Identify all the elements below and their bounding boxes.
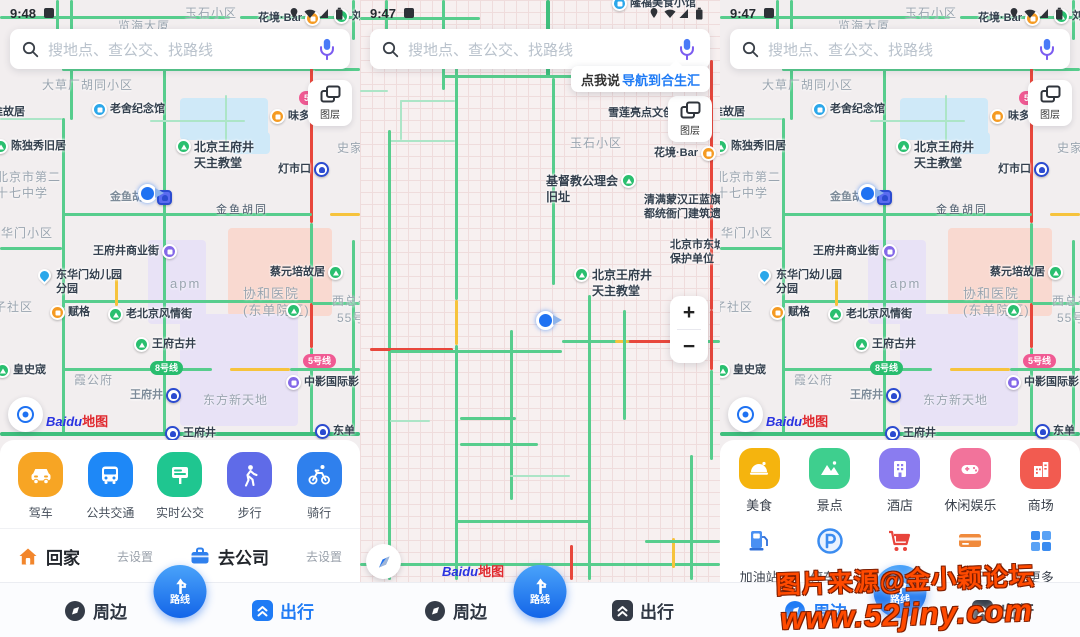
home-settings-link[interactable]: 去设置 — [117, 548, 153, 565]
clock: 9:47 — [370, 6, 396, 21]
poi-church[interactable]: 北京王府井天主教堂 — [896, 140, 974, 171]
poi-chenduxiu[interactable]: 陈独秀旧居 — [720, 140, 786, 154]
go-company-shortcut[interactable]: 去公司 — [190, 544, 269, 569]
district-label: 史家 — [337, 139, 360, 156]
heritage-icon — [328, 265, 343, 280]
heritage-icon — [0, 363, 10, 378]
locate-icon — [736, 405, 755, 424]
museum-icon — [812, 102, 827, 117]
compass-needle-icon — [375, 553, 393, 571]
poi-church[interactable]: 北京王府井天主教堂 — [176, 140, 254, 171]
status-icons — [648, 7, 710, 20]
church-icon — [574, 267, 589, 282]
transport-realtime-bus[interactable]: 实时公交 — [148, 452, 212, 521]
company-settings-link[interactable]: 去设置 — [306, 548, 342, 565]
transport-drive[interactable]: 驾车 — [9, 452, 73, 521]
heritage-icon — [720, 363, 730, 378]
phone-screen-left: 玉石小区 览海大厦 花境·Bar 刘 大草厂胡同小区 准故居 老舍纪念馆 味多美… — [0, 0, 360, 637]
heritage-icon — [1048, 265, 1063, 280]
road — [588, 295, 591, 580]
church-icon — [896, 139, 911, 154]
transport-transit[interactable]: 公共交通 — [78, 452, 142, 521]
road-congested — [710, 60, 713, 310]
status-icons — [288, 7, 350, 20]
road-name-label: 金鱼胡同 — [936, 201, 988, 217]
layers-icon — [680, 101, 701, 120]
road — [455, 55, 458, 300]
clock: 9:47 — [730, 6, 756, 21]
layers-button[interactable]: 图层 — [668, 96, 712, 142]
poi-former-residence[interactable]: 准故居 — [0, 106, 25, 119]
pedestrian-icon — [227, 452, 272, 497]
district-label: 玉石小区 — [570, 134, 622, 151]
road — [710, 370, 713, 460]
zoom-out-button[interactable]: − — [670, 330, 708, 363]
nav-trip[interactable]: 出行 — [972, 598, 1034, 623]
search-bar[interactable]: 搜地点、查公交、找路线 — [370, 29, 710, 69]
road-congested — [310, 303, 313, 348]
poi-caiyuanpei[interactable]: 蔡元培故居 — [990, 266, 1063, 280]
layers-icon — [1040, 85, 1061, 104]
search-placeholder: 搜地点、查公交、找路线 — [768, 39, 1027, 60]
compass-icon — [784, 600, 806, 622]
poi-fuge[interactable]: 赋格 — [770, 306, 810, 320]
road — [62, 213, 312, 216]
road — [1072, 240, 1075, 432]
cart-icon — [879, 520, 920, 561]
baidu-maps-logo: Baidu地图 — [46, 411, 108, 430]
address-label: 55号 — [337, 309, 360, 326]
nav-route-button[interactable]: 路线 — [514, 565, 567, 618]
district-label: 子社区 — [720, 298, 753, 315]
heritage-icon — [0, 139, 8, 154]
hotel-icon — [879, 448, 920, 489]
district-label: 大草厂胡同小区 — [762, 76, 853, 93]
current-location-dot — [858, 184, 877, 203]
metro-line8-badge: 8号线 — [150, 361, 183, 375]
search-bar[interactable]: 搜地点、查公交、找路线 — [730, 29, 1070, 69]
poi-huangshicheng[interactable]: 皇史宬 — [0, 364, 46, 378]
school-label: 北京市第二十七中学 — [0, 170, 61, 201]
clock: 9:48 — [10, 6, 36, 21]
metro-icon — [885, 426, 900, 441]
poi-ancient-well[interactable]: 王府古井 — [134, 338, 196, 352]
building-label: 霞公府 — [794, 371, 833, 388]
heritage-icon — [720, 139, 728, 154]
poi-wfj-street[interactable]: 王府井商业街 — [813, 245, 897, 259]
transport-walk[interactable]: 步行 — [218, 452, 282, 521]
phone-screen-right: 玉石小区 览海大厦 花境·Bar 刘 大草厂胡同小区 准故居 老舍纪念馆 味多美… — [720, 0, 1080, 637]
compass-icon — [424, 600, 446, 622]
voice-hint-tooltip[interactable]: 点我说 导航到合生汇 — [571, 66, 710, 92]
road — [1010, 368, 1080, 371]
category-gas-station[interactable]: 加油站 — [726, 520, 792, 586]
transport-ride[interactable]: 骑行 — [287, 452, 351, 521]
road — [150, 120, 245, 122]
search-icon — [742, 41, 759, 58]
gamepad-icon — [950, 448, 991, 489]
school-label: 北京市第二十七中学 — [720, 170, 781, 201]
bottom-nav: 周边 路线 出行 — [360, 582, 720, 637]
road-slow — [615, 340, 629, 343]
bus-icon — [88, 452, 133, 497]
poi-old-beijing-street[interactable]: 老北京风情街 — [108, 308, 192, 322]
poi-dongdan-station[interactable]: 东单 — [1035, 425, 1075, 439]
road-name-label: 西总布 — [1052, 292, 1080, 309]
current-location-dot — [536, 311, 555, 330]
poi-cinema[interactable]: 中影国际影 — [286, 376, 359, 390]
nav-route-button[interactable]: 路线 — [154, 565, 207, 618]
mall-label-apm: apm — [890, 276, 921, 291]
metro-icon — [886, 388, 901, 403]
search-placeholder: 搜地点、查公交、找路线 — [408, 39, 667, 60]
road — [352, 240, 355, 432]
museum-icon — [92, 102, 107, 117]
mall-label: 东方新天地 — [923, 391, 988, 408]
road — [390, 420, 430, 422]
nav-route-button[interactable]: 路线 — [874, 565, 927, 618]
locate-me-button[interactable] — [728, 397, 763, 432]
road — [460, 443, 538, 446]
road — [1030, 223, 1033, 303]
pin-icon — [35, 266, 53, 284]
shopping-icon — [882, 244, 897, 259]
bottom-nav: 周边 路线 出行 — [0, 582, 360, 637]
bus-stop-icon — [157, 452, 202, 497]
hospital-icon — [286, 303, 301, 318]
baidu-maps-logo: Baidu地图 — [766, 411, 828, 430]
road — [0, 247, 62, 250]
category-hotel[interactable]: 酒店 — [867, 448, 933, 514]
gas-pump-icon — [739, 520, 780, 561]
microphone-icon[interactable] — [316, 37, 338, 61]
road — [360, 90, 388, 92]
scenic-icon — [134, 337, 149, 352]
nav-nearby[interactable]: 周边 — [64, 598, 127, 623]
road — [388, 130, 391, 580]
metro-line5-badge: 5号线 — [1023, 354, 1056, 368]
poi-dengshikou-station[interactable]: 灯市口 — [998, 163, 1049, 177]
poi-cinema[interactable]: 中影国际影 — [1006, 376, 1079, 390]
compass-icon — [64, 600, 86, 622]
baidu-maps-logo: Baidu地图 — [442, 561, 504, 580]
home-icon — [18, 547, 38, 566]
shopping-icon — [162, 244, 177, 259]
transport-modes-row: 驾车 公共交通 实时公交 步行 骑行 — [0, 440, 360, 521]
food-icon — [270, 109, 285, 124]
metro-icon — [1034, 162, 1049, 177]
poi-former-residence[interactable]: 准故居 — [720, 106, 745, 119]
status-icons — [1008, 7, 1070, 20]
metro-line8-badge: 8号线 — [870, 361, 903, 375]
road — [390, 350, 562, 353]
protected-site-label: 北京市东城保护单位 — [670, 238, 720, 267]
road-congested — [1030, 303, 1033, 348]
pin-icon — [755, 266, 773, 284]
category-food[interactable]: 美食 — [726, 448, 792, 514]
poi-wfj-church[interactable]: 北京王府井天主教堂 — [574, 268, 652, 299]
pin-wifi-signal-battery-icons — [648, 7, 710, 20]
search-placeholder: 搜地点、查公交、找路线 — [48, 39, 307, 60]
poi-caiyuanpei[interactable]: 蔡元培故居 — [270, 266, 343, 280]
poi-dengshikou-station[interactable]: 灯市口 — [278, 163, 329, 177]
pin-wifi-signal-battery-icons — [288, 7, 350, 20]
trip-chevrons-icon — [972, 600, 993, 621]
heritage-site-label: 清满蒙汉正蓝旗都统衙门建筑遗址 — [644, 193, 720, 222]
recorder-icon — [764, 8, 774, 18]
current-location-dot — [138, 184, 157, 203]
metro-icon — [166, 388, 181, 403]
road-congested — [710, 310, 713, 370]
metro-line5-badge: 5号线 — [303, 354, 336, 368]
district-label: 东华门小区 — [720, 224, 773, 241]
more-grid-icon — [1020, 520, 1061, 561]
road-slow — [330, 213, 360, 216]
road — [510, 475, 570, 477]
status-bar: 9:47 — [360, 0, 720, 24]
poi-wfj-station-south[interactable]: 王府井 — [885, 427, 936, 441]
road — [870, 120, 965, 122]
trip-chevrons-icon — [612, 600, 633, 621]
pin-wifi-signal-battery-icons — [1008, 7, 1070, 20]
nav-trip[interactable]: 出行 — [612, 598, 674, 623]
road — [623, 310, 626, 420]
road — [455, 345, 458, 580]
district-label: 子社区 — [0, 298, 33, 315]
road — [455, 520, 590, 523]
poi-church-site[interactable]: 基督教公理会旧址 — [546, 174, 636, 205]
status-bar: 9:47 — [720, 0, 1080, 24]
route-bottom-sheet: 驾车 公共交通 实时公交 步行 骑行 — [0, 440, 360, 583]
parking-icon — [809, 520, 850, 561]
road — [720, 247, 782, 250]
nearby-categories-sheet: 美食 景点 酒店 休闲娱乐 商场 — [720, 440, 1080, 583]
poi-huangshicheng[interactable]: 皇史宬 — [720, 364, 766, 378]
bottom-nav: 周边 路线 出行 — [720, 582, 1080, 637]
poi-kindergarten[interactable]: 东华门幼儿园分园 — [758, 268, 842, 297]
cinema-icon — [1006, 375, 1021, 390]
microphone-icon[interactable] — [676, 37, 698, 61]
screenshot-stage: 玉石小区 览海大厦 花境·Bar 刘 大草厂胡同小区 准故居 老舍纪念馆 味多美… — [0, 0, 1080, 637]
road — [290, 368, 360, 371]
building-label: 霞公府 — [74, 371, 113, 388]
layers-icon — [320, 85, 341, 104]
church-icon — [176, 139, 191, 154]
mountain-icon — [809, 448, 850, 489]
category-more[interactable]: 更多 — [1008, 520, 1074, 586]
mall-label: 东方新天地 — [203, 391, 268, 408]
search-bar[interactable]: 搜地点、查公交、找路线 — [10, 29, 350, 69]
road — [310, 223, 313, 303]
briefcase-icon — [190, 547, 210, 565]
district-label: 东华门小区 — [0, 224, 53, 241]
nav-nearby[interactable]: 周边 — [784, 598, 847, 623]
poi-kindergarten[interactable]: 东华门幼儿园分园 — [38, 268, 122, 297]
search-icon — [382, 41, 399, 58]
road-name-label: 金鱼胡同 — [216, 201, 268, 217]
scenic-icon — [854, 337, 869, 352]
road — [690, 455, 693, 580]
road-slow — [230, 368, 290, 371]
poi-wfj-street[interactable]: 王府井商业街 — [93, 245, 177, 259]
bank-card-icon — [950, 520, 991, 561]
scenic-icon — [108, 307, 123, 322]
food-icon — [50, 305, 65, 320]
mall-icon — [1020, 448, 1061, 489]
poi-bar[interactable]: 花境·Bar — [654, 147, 716, 161]
scenic-icon — [828, 307, 843, 322]
metro-icon — [315, 424, 330, 439]
road — [400, 100, 402, 140]
road-congested — [629, 340, 671, 343]
nav-trip[interactable]: 出行 — [252, 598, 314, 623]
bar-icon — [701, 146, 716, 161]
road-slow — [1050, 213, 1080, 216]
poi-wfj-station[interactable]: 王府井 — [850, 389, 901, 403]
layers-button[interactable]: 图层 — [308, 80, 352, 126]
poi-fuge[interactable]: 赋格 — [50, 306, 90, 320]
map-canvas[interactable]: 隆福美食小馆 雪莲亮点文创园 玉石小区 花境·Bar 基督教公理会旧址 清满蒙汉… — [360, 0, 720, 637]
road — [460, 417, 516, 420]
zoom-control: + − — [670, 296, 708, 363]
metro-icon — [1035, 424, 1050, 439]
road — [782, 213, 1032, 216]
poi-old-beijing-street[interactable]: 老北京风情街 — [828, 308, 912, 322]
poi-laoshe-museum[interactable]: 老舍纪念馆 — [812, 103, 885, 117]
trip-chevrons-icon — [252, 600, 273, 621]
road-slow — [950, 368, 1010, 371]
road — [400, 100, 455, 102]
road — [645, 540, 720, 543]
poi-wfj-station[interactable]: 王府井 — [130, 389, 181, 403]
microphone-icon[interactable] — [1036, 37, 1058, 61]
poi-wfj-station-south[interactable]: 王府井 — [165, 427, 216, 441]
nav-nearby[interactable]: 周边 — [424, 598, 487, 623]
road — [388, 140, 455, 142]
food-icon — [739, 448, 780, 489]
district-label: 史家 — [1057, 139, 1080, 156]
road-name-label: 西总布 — [332, 292, 360, 309]
cinema-icon — [286, 375, 301, 390]
church-icon — [621, 173, 636, 188]
category-mall[interactable]: 商场 — [1008, 448, 1074, 514]
metro-icon — [165, 426, 180, 441]
car-icon — [18, 452, 63, 497]
poi-chenduxiu[interactable]: 陈独秀旧居 — [0, 140, 66, 154]
recorder-icon — [44, 8, 54, 18]
road-slow — [455, 300, 458, 345]
poi-ancient-well[interactable]: 王府古井 — [854, 338, 916, 352]
locate-icon — [16, 405, 35, 424]
category-row-1: 美食 景点 酒店 休闲娱乐 商场 — [720, 448, 1080, 514]
metro-icon — [314, 162, 329, 177]
recorder-icon — [404, 8, 414, 18]
phone-screen-middle: 隆福美食小馆 雪莲亮点文创园 玉石小区 花境·Bar 基督教公理会旧址 清满蒙汉… — [360, 0, 720, 637]
compass-button[interactable] — [366, 544, 401, 579]
status-bar: 9:48 — [0, 0, 360, 24]
poi-dongdan-station[interactable]: 东单 — [315, 425, 355, 439]
zoom-in-button[interactable]: + — [670, 296, 708, 329]
layers-button[interactable]: 图层 — [1028, 80, 1072, 126]
address-label: 55号 — [1057, 309, 1080, 326]
search-icon — [22, 41, 39, 58]
hospital-icon — [1006, 303, 1021, 318]
mall-label-apm: apm — [170, 276, 201, 291]
locate-me-button[interactable] — [8, 397, 43, 432]
category-scenic[interactable]: 景点 — [797, 448, 863, 514]
category-bank[interactable]: 银行 — [937, 520, 1003, 586]
road-congested — [570, 545, 573, 580]
food-icon — [770, 305, 785, 320]
poi-laoshe-museum[interactable]: 老舍纪念馆 — [92, 103, 165, 117]
food-icon — [990, 109, 1005, 124]
go-home-shortcut[interactable]: 回家 — [18, 544, 80, 569]
bicycle-icon — [297, 452, 342, 497]
category-parking[interactable]: 停车场 — [797, 520, 863, 586]
district-label: 大草厂胡同小区 — [42, 76, 133, 93]
category-entertainment[interactable]: 休闲娱乐 — [937, 448, 1003, 514]
